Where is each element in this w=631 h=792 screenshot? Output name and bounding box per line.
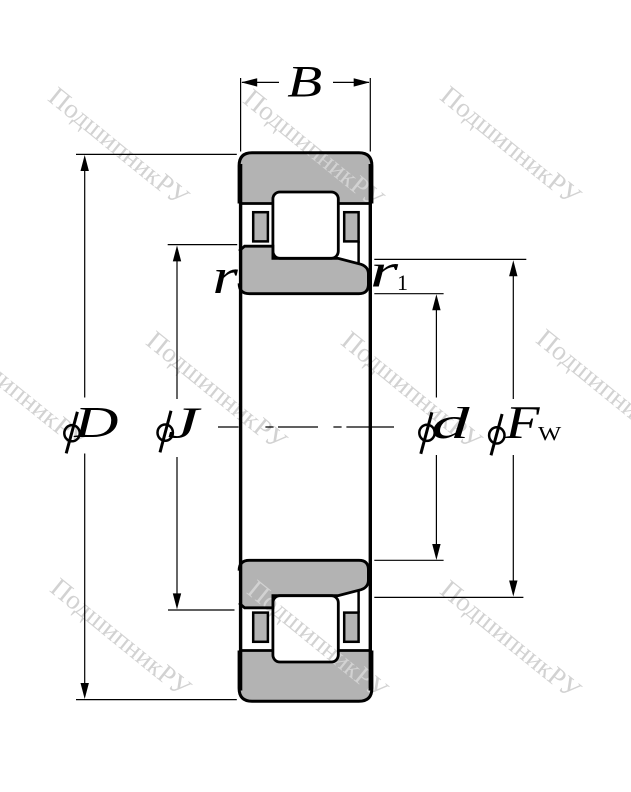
svg-text:B: B: [287, 58, 322, 106]
svg-text:d: d: [431, 399, 470, 448]
svg-text:D: D: [73, 398, 118, 447]
svg-text:J: J: [168, 399, 203, 448]
svg-text:r: r: [370, 244, 398, 297]
svg-text:W: W: [538, 422, 562, 445]
svg-text:1: 1: [397, 270, 408, 295]
svg-text:r: r: [213, 248, 239, 304]
